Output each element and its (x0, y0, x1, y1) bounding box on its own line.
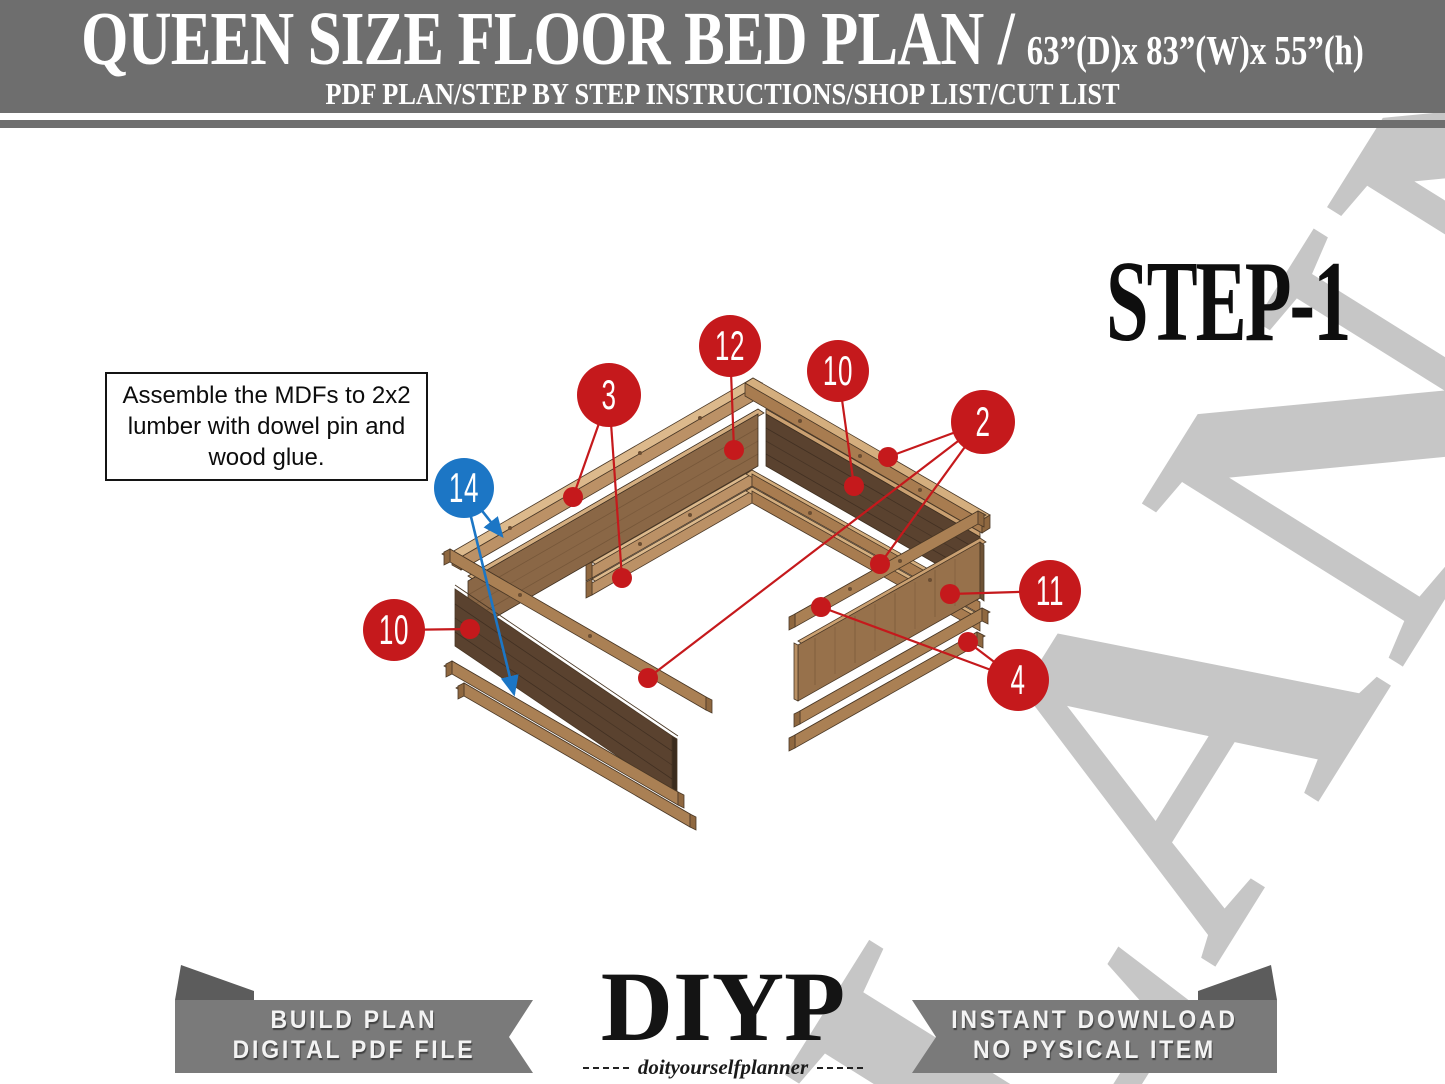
front-wall-assembly-part (794, 643, 798, 701)
side-wall-assembly-part (444, 549, 450, 565)
callout-10: 10 (807, 340, 869, 402)
callout-10: 10 (363, 599, 425, 661)
callout-3: 3 (577, 363, 641, 427)
dowel-marks-part (848, 587, 852, 591)
callout-number-2: 2 (975, 399, 990, 446)
leader-dot-12 (724, 440, 744, 460)
dowel-marks-part (698, 416, 702, 420)
right-ribbon-fold (1198, 965, 1277, 1000)
front-wall-assembly-part (789, 614, 795, 630)
inner-bottom-rails-part (586, 579, 592, 598)
left-ribbon-label: BUILD PLAN DIGITAL PDF FILE (189, 1005, 518, 1065)
assembly-diagram: 1231021410114 (0, 0, 1445, 1084)
instruction-text: Assemble the MDFs to 2x2 lumber with dow… (122, 382, 410, 471)
front-wall-assembly-part (794, 711, 800, 727)
dowel-marks-part (918, 488, 922, 492)
step-label: STEP-1 (1106, 252, 1349, 352)
dowel-marks-part (808, 511, 812, 515)
left-ribbon-line1: BUILD PLAN (189, 1005, 518, 1035)
callout-number-10: 10 (379, 607, 409, 654)
callout-4: 4 (987, 649, 1049, 711)
brand-logo: DIYP doityourselfplanner (573, 960, 873, 1080)
callout-12: 12 (699, 315, 761, 377)
side-wall-assembly-part (446, 661, 452, 677)
leader-dot-10 (844, 476, 864, 496)
side-wall-assembly-part (458, 683, 464, 699)
callout-number-3: 3 (601, 372, 616, 419)
leader-dot-4 (958, 632, 978, 652)
instruction-box: Assemble the MDFs to 2x2 lumber with dow… (105, 372, 428, 481)
tagline-dash (817, 1067, 863, 1069)
leader-dot-10 (460, 619, 480, 639)
callout-number-11: 11 (1036, 568, 1064, 615)
dowel-marks-part (518, 593, 522, 597)
side-wall-assembly-part (706, 697, 712, 713)
right-ribbon-line2: NO PYSICAL ITEM (927, 1035, 1263, 1065)
leader-dot-4 (811, 597, 831, 617)
leader-dot-2 (870, 554, 890, 574)
tagline-dash (583, 1067, 629, 1069)
left-ribbon-fold (175, 965, 254, 1000)
inner-bottom-rails-part (586, 562, 592, 581)
dowel-marks-part (928, 578, 932, 582)
plan-page: PLANNER (0, 0, 1445, 1084)
callout-number-4: 4 (1010, 657, 1025, 704)
dowel-marks-part (588, 634, 592, 638)
leader-dot-3 (563, 487, 583, 507)
leader-dot-2 (878, 447, 898, 467)
side-wall-assembly-part (678, 792, 684, 808)
right-ribbon-line1: INSTANT DOWNLOAD (927, 1005, 1263, 1035)
leader-dot-3 (612, 568, 632, 588)
left-ribbon-line2: DIGITAL PDF FILE (189, 1035, 518, 1065)
side-wall-assembly-part (672, 736, 677, 796)
dowel-marks-part (638, 451, 642, 455)
side-wall-assembly-part (690, 814, 696, 830)
leader-dot-2 (638, 668, 658, 688)
dowel-marks-part (858, 454, 862, 458)
right-ribbon-label: INSTANT DOWNLOAD NO PYSICAL ITEM (927, 1005, 1263, 1065)
logo-tagline: doityourselfplanner (638, 1055, 808, 1080)
logo-name: DIYP (573, 960, 873, 1054)
callout-number-12: 12 (715, 323, 745, 370)
dowel-marks-part (508, 526, 512, 530)
callout-14: 14 (434, 458, 494, 518)
front-wall-assembly-part (977, 632, 983, 648)
dowel-marks-part (798, 419, 802, 423)
callout-11: 11 (1019, 560, 1081, 622)
leader-dot-11 (940, 584, 960, 604)
dowel-marks-part (898, 559, 902, 563)
callout-number-14: 14 (449, 465, 479, 512)
front-wall-assembly-part (982, 608, 988, 624)
callout-number-10: 10 (823, 348, 853, 395)
front-wall-assembly-part (789, 735, 795, 751)
callout-2: 2 (951, 390, 1015, 454)
front-wall-assembly-part (978, 511, 984, 527)
dowel-marks-part (688, 513, 692, 517)
dowel-marks-part (638, 542, 642, 546)
